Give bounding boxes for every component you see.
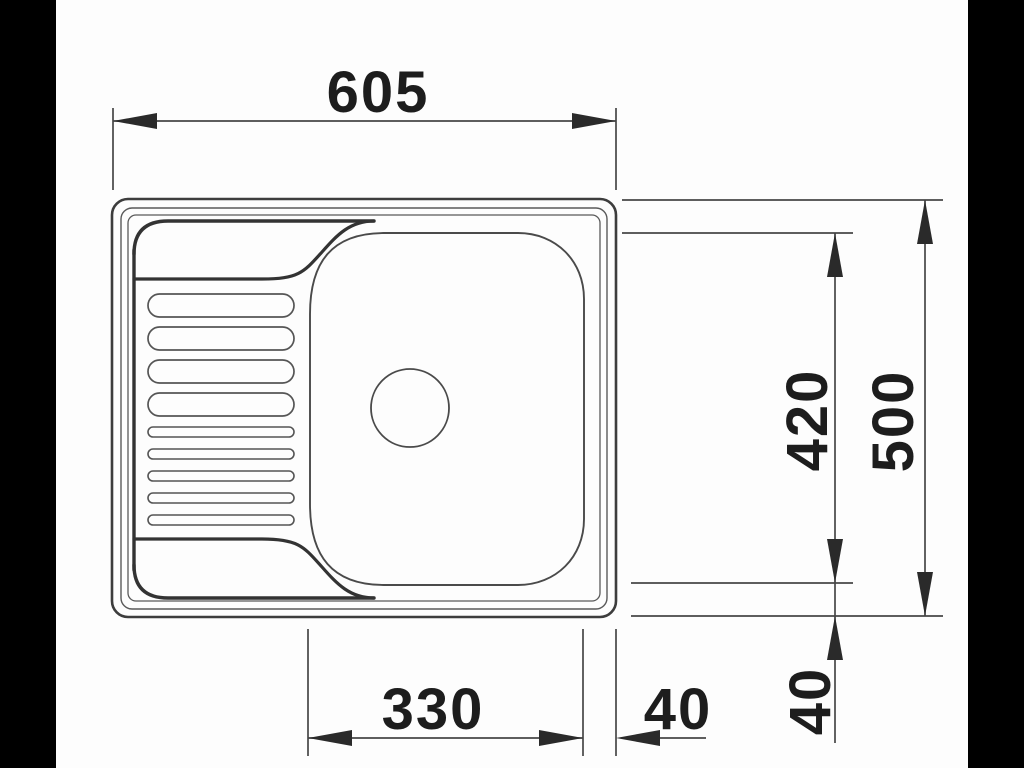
dim-label-gap-horizontal: 40 xyxy=(644,677,713,742)
letterbox-right xyxy=(968,0,1024,768)
sink-technical-drawing-canvas: 605 420 500 40 xyxy=(0,0,1024,768)
dim-label-bowl-length: 420 xyxy=(775,369,840,472)
dim-label-bowl-width: 330 xyxy=(382,677,485,742)
dim-label-overall-width: 605 xyxy=(327,60,430,125)
screenshot-root: 605 420 500 40 xyxy=(0,0,1024,768)
dim-label-gap-vertical: 40 xyxy=(778,667,843,736)
letterbox-left xyxy=(0,0,56,768)
dim-label-overall-depth: 500 xyxy=(861,370,926,473)
